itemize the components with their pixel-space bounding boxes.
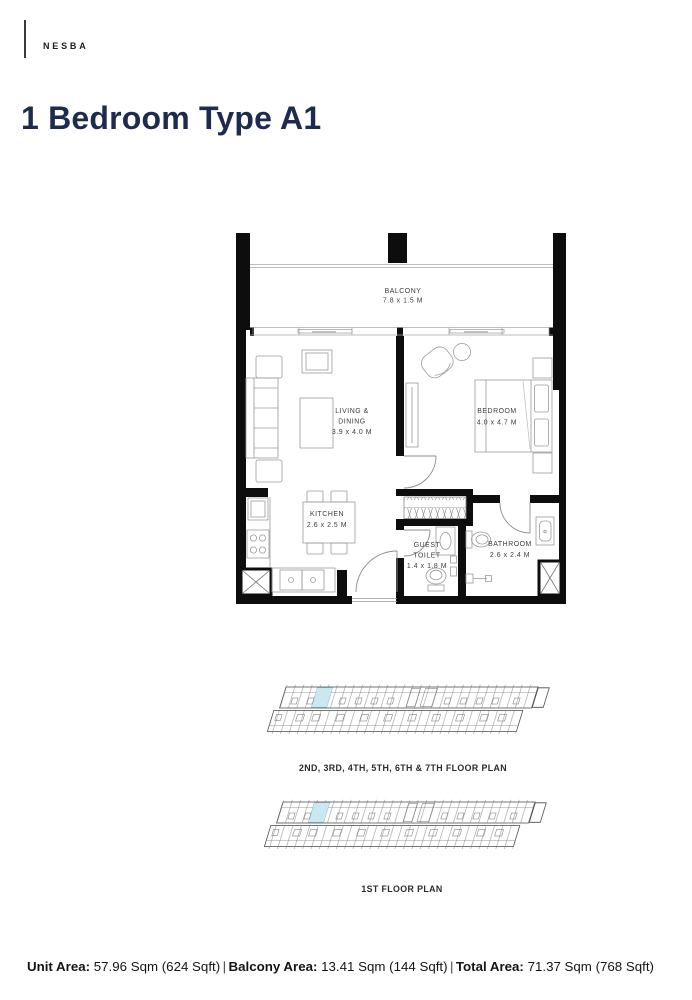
brand-text: NESBA	[43, 41, 89, 51]
balcony-area-label: Balcony Area:	[229, 959, 318, 974]
key-plan-first-floor-drawing	[264, 800, 548, 849]
brand-divider-line	[24, 20, 26, 58]
living-dims: 3.9 x 4.0 M	[332, 429, 372, 436]
bedroom-label: BEDROOM	[477, 408, 516, 415]
brochure-page: NESBA 1 Bedroom Type A1	[0, 0, 692, 1000]
unit-area-label: Unit Area:	[27, 959, 90, 974]
key-plan-upper-floors-drawing	[267, 685, 551, 734]
guest-toilet-label-line1: GUEST	[414, 542, 441, 549]
area-summary: Unit Area: 57.96 Sqm (624 Sqft) | Balcon…	[0, 959, 692, 974]
room-labels: BALCONY 7.8 x 1.5 M LIVING & DINING 3.9 …	[307, 288, 532, 570]
footer-separator: |	[223, 959, 226, 974]
balcony-dims: 7.8 x 1.5 M	[383, 298, 423, 305]
balcony-label: BALCONY	[385, 288, 422, 295]
doors-layer	[352, 456, 530, 602]
balcony-area-value: 13.41 Sqm (144 Sqft)	[321, 959, 447, 974]
total-area-item: Total Area: 71.37 Sqm (768 Sqft)	[456, 959, 654, 974]
unit-floor-plan: BALCONY 7.8 x 1.5 M LIVING & DINING 3.9 …	[230, 228, 570, 608]
guest-toilet-label-line2: TOILET	[413, 553, 441, 560]
living-label-line2: DINING	[338, 419, 365, 426]
living-label-line1: LIVING &	[335, 408, 369, 415]
balcony-area-item: Balcony Area: 13.41 Sqm (144 Sqft)	[229, 959, 448, 974]
key-plans: 2ND, 3RD, 4TH, 5TH, 6TH & 7TH FLOOR PLAN…	[240, 680, 560, 900]
total-area-value: 71.37 Sqm (768 Sqft)	[528, 959, 654, 974]
key-plan-first-floor-caption: 1ST FLOOR PLAN	[361, 884, 442, 894]
footer-separator: |	[450, 959, 453, 974]
page-title: 1 Bedroom Type A1	[21, 100, 321, 137]
bathroom-label: BATHROOM	[488, 541, 532, 548]
total-area-label: Total Area:	[456, 959, 524, 974]
kitchen-dims: 2.6 x 2.5 M	[307, 522, 347, 529]
kitchen-label: KITCHEN	[310, 511, 344, 518]
unit-area-value: 57.96 Sqm (624 Sqft)	[94, 959, 220, 974]
key-plan-upper-floors-caption: 2ND, 3RD, 4TH, 5TH, 6TH & 7TH FLOOR PLAN	[299, 763, 507, 773]
bathroom-dims: 2.6 x 2.4 M	[490, 552, 530, 559]
unit-area-item: Unit Area: 57.96 Sqm (624 Sqft)	[27, 959, 220, 974]
guest-toilet-dims: 1.4 x 1.8 M	[407, 563, 447, 570]
bedroom-dims: 4.0 x 4.7 M	[477, 420, 517, 427]
